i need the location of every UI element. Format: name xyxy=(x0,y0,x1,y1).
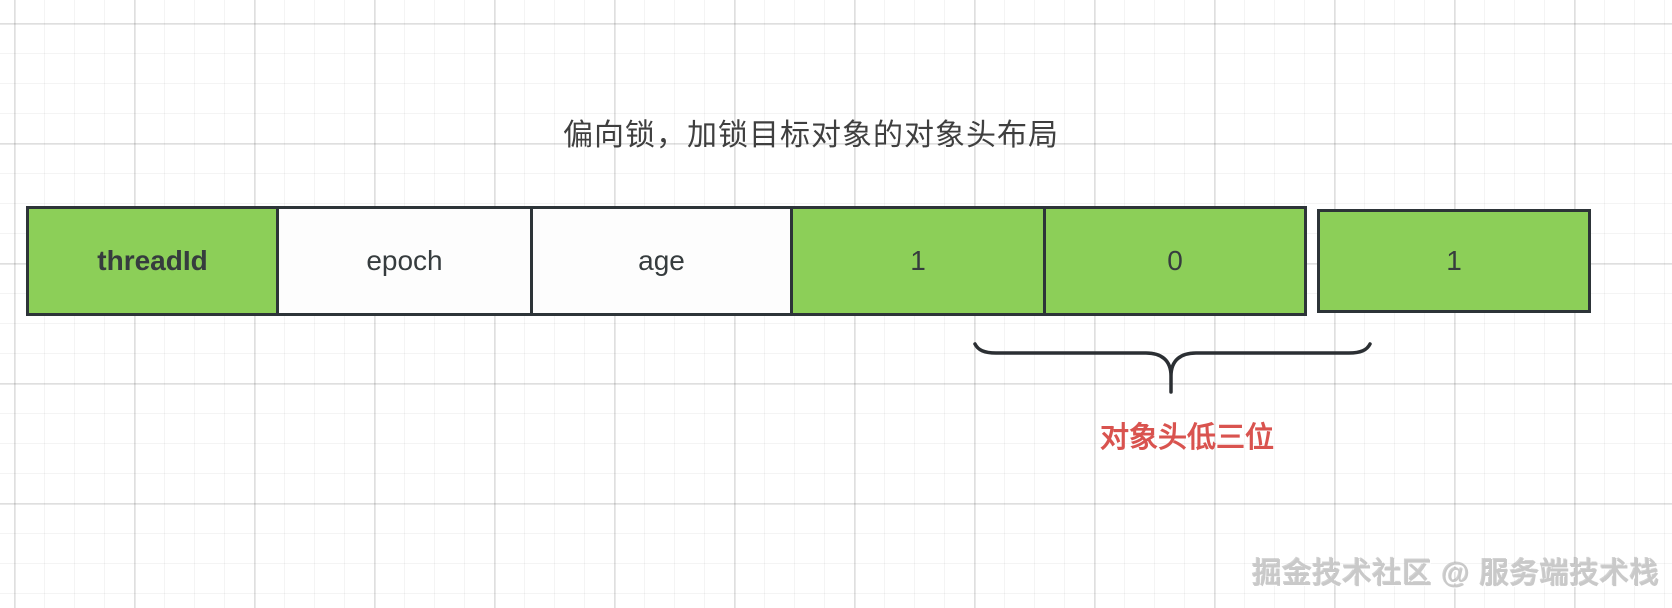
field-threadid: threadId xyxy=(29,209,276,313)
field-age: age xyxy=(530,209,790,313)
bit-cell-detached-1: 1 xyxy=(1317,209,1591,313)
low-three-bits-label: 对象头低三位 xyxy=(1087,414,1287,456)
diagram-title: 偏向锁，加锁目标对象的对象头布局 xyxy=(436,110,1186,154)
diagram-canvas: 偏向锁，加锁目标对象的对象头布局 threadId epoch age 1 0 … xyxy=(0,0,1672,608)
bit-cell-0: 0 xyxy=(1043,209,1304,313)
watermark: 掘金技术社区 @ 服务端技术栈 xyxy=(1253,550,1660,592)
field-epoch: epoch xyxy=(276,209,530,313)
object-header-row: threadId epoch age 1 0 xyxy=(26,206,1307,316)
bit-cell-1: 1 xyxy=(790,209,1043,313)
